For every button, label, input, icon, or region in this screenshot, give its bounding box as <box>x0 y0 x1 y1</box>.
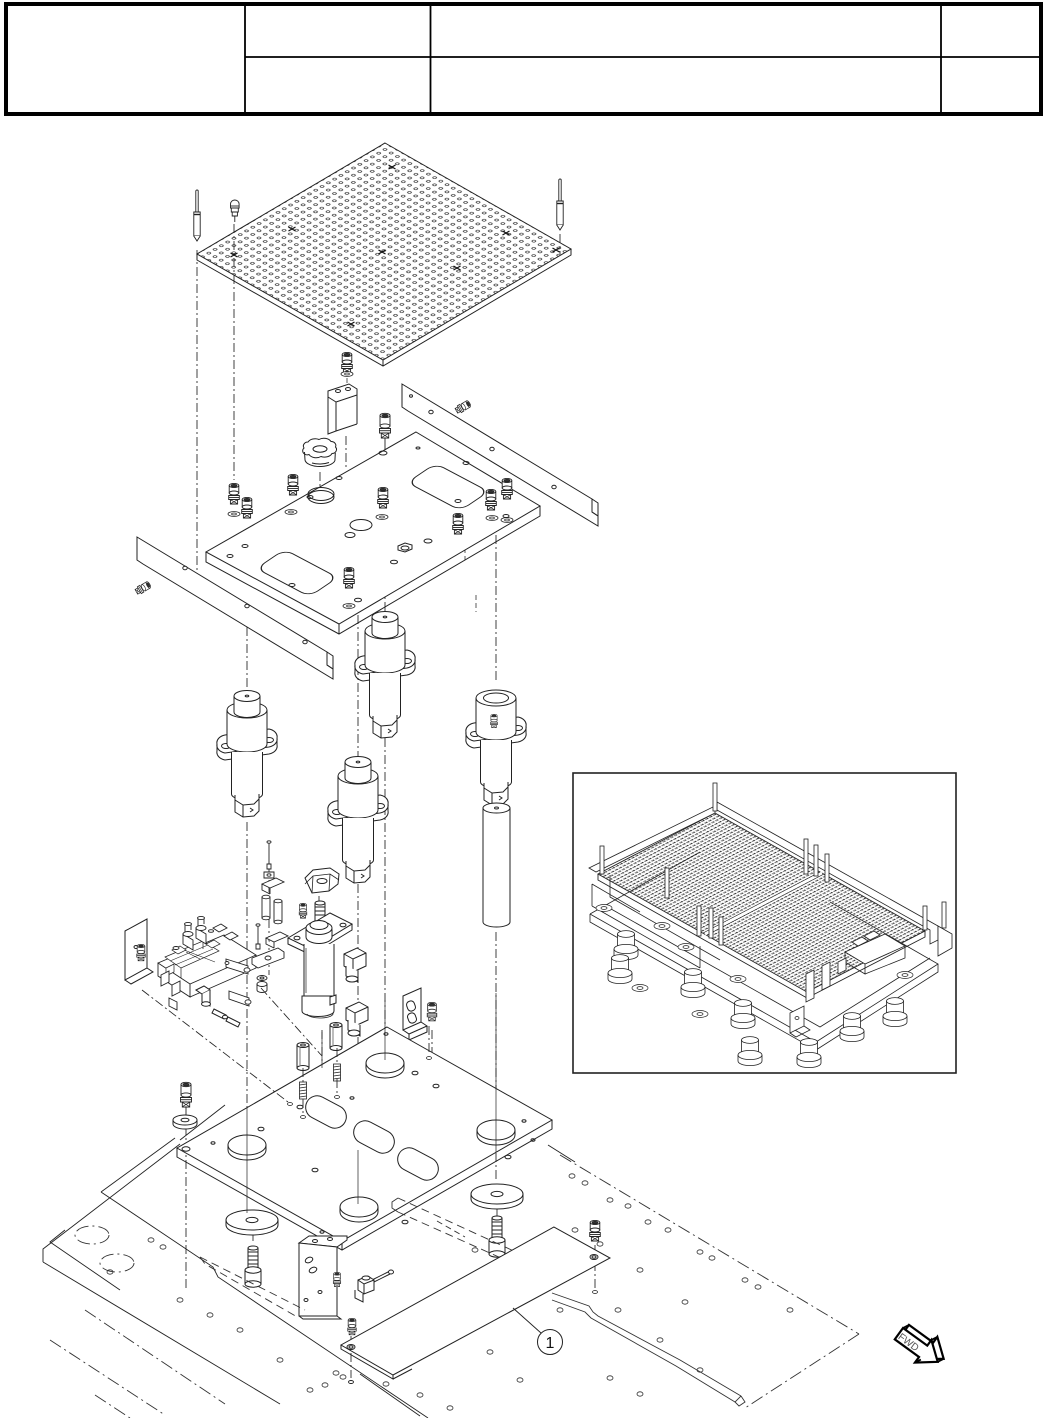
svg-text:1: 1 <box>546 1335 555 1352</box>
